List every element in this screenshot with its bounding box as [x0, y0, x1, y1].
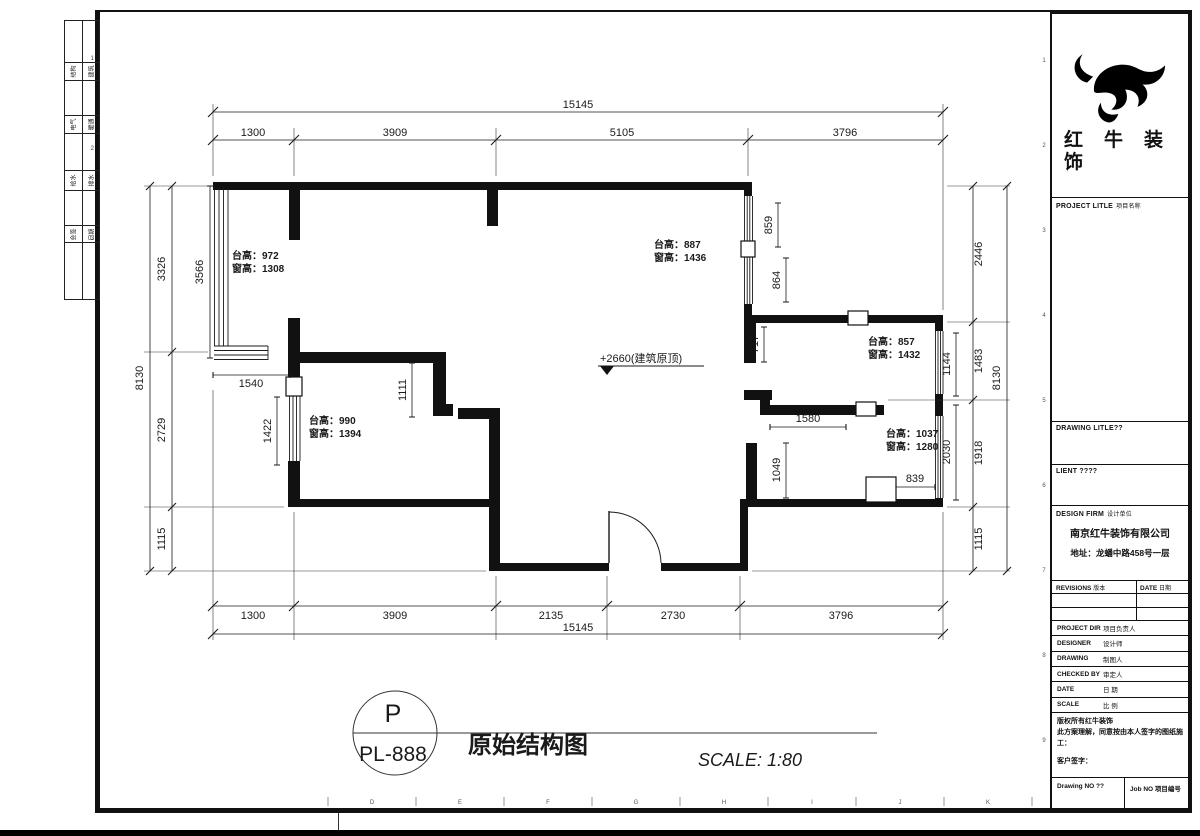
- dim-right-1: 1483: [973, 349, 985, 373]
- project-title-section: PROJECT LITLE项目名称: [1052, 197, 1188, 421]
- dim-left-1: 2729: [156, 418, 168, 442]
- strip-label: 排水: [86, 174, 95, 186]
- page-title: 原始结构图: [468, 731, 588, 759]
- dim-inner-859: 859: [763, 216, 775, 234]
- svg-text:2: 2: [1042, 143, 1046, 149]
- dim-right-3: 1115: [973, 528, 985, 551]
- elevation-marker: +2660(建筑原顶): [598, 351, 704, 375]
- dimension-lines: [150, 112, 1007, 634]
- numbers-section: Drawing NO ?? Job NO 项目编号: [1052, 777, 1188, 812]
- wall-columns: [286, 241, 896, 502]
- svg-text:7: 7: [1042, 568, 1046, 574]
- numbers-divider: [1124, 778, 1125, 812]
- svg-text:E: E: [458, 800, 462, 806]
- drawing-sheet: { "sheet": { "drawing_title": "原始结构图", "…: [0, 0, 1200, 836]
- brand-name-line2: 饰: [1052, 152, 1188, 174]
- client-sign-label: 客户签字：: [1057, 757, 1183, 768]
- dim-inner-2030: 2030: [941, 440, 953, 464]
- dim-inner-864: 864: [771, 271, 783, 289]
- project-title-label: PROJECT LITLE: [1056, 203, 1113, 210]
- design-firm-section: DESIGN FIRM设计单位 南京红牛装饰有限公司 地址：龙蟠中路458号一层: [1052, 505, 1188, 580]
- dim-bottom-3: 2730: [661, 610, 685, 622]
- revisions-label: REVISIONS: [1056, 585, 1091, 592]
- frame-right-border: [1190, 10, 1192, 813]
- staff-row: SCALE比 例: [1052, 697, 1188, 712]
- strip-label: 会签: [69, 228, 78, 240]
- svg-text:3: 3: [1042, 228, 1046, 234]
- note-sill: 台高：990: [309, 414, 356, 427]
- drawing-no-label: Drawing NO ??: [1057, 783, 1104, 790]
- staff-rows-section: PROJECT DIR项目负责人 DESIGNER设计师 DRAWING制图人 …: [1052, 620, 1188, 712]
- strip-blank-row: [65, 243, 99, 299]
- note-sill: 台高：1037: [886, 427, 939, 440]
- rednull-bull-logo-icon: [1068, 48, 1172, 126]
- staff-row: DESIGNER设计师: [1052, 635, 1188, 650]
- copyright-line1: 版权所有红牛装饰: [1057, 717, 1183, 728]
- note-win: 窗高：1432: [868, 348, 921, 361]
- strip-label-row: 结构 建筑: [65, 63, 99, 81]
- binding-strip: 结构 建筑 电气 暖通 给水 排水 会签 日期: [64, 20, 100, 300]
- sheet-row-ref: 3: [86, 236, 94, 242]
- dim-inner-1049: 1049: [771, 458, 783, 482]
- svg-text:K: K: [986, 800, 990, 806]
- date-col-label: DATE: [1140, 585, 1157, 592]
- dim-bottom-1: 3909: [383, 610, 407, 622]
- revisions-row-line: [1052, 607, 1188, 608]
- dim-right-0: 2446: [973, 242, 985, 266]
- svg-text:6: 6: [1042, 483, 1046, 489]
- staff-row: CHECKED BY审定人: [1052, 666, 1188, 681]
- stamp-code: P: [385, 700, 402, 728]
- dim-left-0: 3326: [156, 257, 168, 281]
- note-sill: 台高：857: [868, 335, 915, 348]
- dim-inner-1422: 1422: [262, 419, 274, 443]
- stamp-number: PL-888: [359, 743, 427, 766]
- dim-top-1: 3909: [383, 127, 407, 139]
- dim-bottom-4: 3796: [829, 610, 853, 622]
- dim-bottom-2: 2135: [539, 610, 563, 622]
- svg-text:4: 4: [1042, 313, 1046, 319]
- dim-inner-1580: 1580: [796, 413, 820, 425]
- dim-inner-1111: 1111: [397, 379, 409, 401]
- sheet-row-refs-right: 1 2 3 4 5 6 7 8 9: [1042, 58, 1046, 744]
- client-label: LIENT ????: [1056, 468, 1097, 475]
- svg-text:D: D: [370, 800, 375, 806]
- svg-text:I: I: [811, 800, 813, 806]
- note-win: 窗高：1280: [886, 440, 939, 453]
- window-lines: [214, 186, 943, 498]
- svg-text:9: 9: [1042, 738, 1046, 744]
- dim-top-0: 1300: [241, 127, 265, 139]
- dim-inner-839: 839: [906, 473, 924, 485]
- strip-label-row: 电气 暖通: [65, 116, 99, 134]
- svg-text:8: 8: [1042, 653, 1046, 659]
- design-firm-label: DESIGN FIRM: [1056, 511, 1104, 518]
- strip-blank-row: [65, 191, 99, 226]
- drawing-title-label: DRAWING LITLE??: [1056, 425, 1123, 432]
- design-firm-cn: 设计单位: [1107, 512, 1132, 518]
- strip-blank-row: [65, 81, 99, 116]
- strip-label: 电气: [69, 118, 78, 130]
- dim-right-total: 8130: [991, 366, 1003, 390]
- dim-right-2: 1918: [973, 441, 985, 465]
- dim-inner-717: 717: [749, 335, 761, 353]
- strip-label: 建筑: [86, 65, 95, 77]
- svg-text:5: 5: [1042, 398, 1046, 404]
- window-notes: 台高：972 窗高：1308 台高：887 窗高：1436 台高：857 窗高：…: [232, 238, 939, 453]
- firm-address: 地址：龙蟠中路458号一层: [1052, 547, 1188, 559]
- svg-text:G: G: [634, 800, 639, 806]
- strip-label: 结构: [69, 65, 78, 77]
- staff-row: DATE日 期: [1052, 681, 1188, 696]
- dim-inner-3566: 3566: [194, 260, 206, 284]
- drawing-title-section: DRAWING LITLE??: [1052, 421, 1188, 464]
- note-sill: 台高：887: [654, 238, 701, 251]
- project-title-cn: 项目名称: [1116, 204, 1141, 210]
- copyright-section: 版权所有红牛装饰 此方案理解，同意按由本人签字的图纸施工： 客户签字：: [1052, 712, 1188, 777]
- svg-text:H: H: [722, 800, 726, 806]
- sheet-row-ref: 2: [86, 146, 94, 152]
- sheet-edge-bar: [0, 830, 1200, 836]
- sheet-column-refs: D E F G H I J K: [328, 797, 1032, 806]
- dim-top-total: 15145: [563, 99, 594, 111]
- dimension-texts: 15145 1300 3909 5105 3796 1300 3909 2135…: [134, 99, 1003, 634]
- firm-name: 南京红牛装饰有限公司: [1052, 525, 1188, 540]
- strip-blank-row: [65, 134, 99, 171]
- sheet-row-ref: 1: [86, 56, 94, 62]
- revisions-cn: 版本: [1093, 586, 1105, 592]
- note-win: 窗高：1308: [232, 262, 285, 275]
- strip-label: 暖通: [86, 118, 95, 130]
- brand-name-line1: 红牛装: [1052, 130, 1188, 152]
- revisions-divider: [1136, 581, 1137, 620]
- sheet-edge-connector: [338, 813, 339, 830]
- note-win: 窗高：1394: [309, 427, 362, 440]
- copyright-line2: 此方案理解，同意按由本人签字的图纸施工：: [1057, 728, 1183, 750]
- door-swing: [609, 511, 661, 563]
- svg-text:F: F: [546, 800, 550, 806]
- floor-plan-canvas: 15145 1300 3909 5105 3796 1300 3909 2135…: [100, 11, 1050, 811]
- dim-top-2: 5105: [610, 127, 634, 139]
- client-section: LIENT ????: [1052, 464, 1188, 505]
- dim-bottom-0: 1300: [241, 610, 265, 622]
- strip-label-row: 给水 排水: [65, 171, 99, 191]
- date-col-cn: 日期: [1159, 586, 1171, 592]
- dim-top-3: 3796: [833, 127, 857, 139]
- elevation-text: +2660(建筑原顶): [600, 351, 682, 365]
- dim-inner-1144: 1144: [941, 352, 953, 376]
- svg-text:J: J: [899, 800, 902, 806]
- job-no-label: Job NO 项目编号: [1130, 783, 1181, 793]
- walls-layer: [213, 182, 943, 571]
- revisions-section: REVISIONS 版本 DATE 日期: [1052, 580, 1188, 620]
- svg-text:1: 1: [1042, 58, 1046, 64]
- note-sill: 台高：972: [232, 249, 279, 262]
- dim-left-total: 8130: [134, 366, 146, 390]
- scale-label: SCALE: 1:80: [698, 750, 802, 770]
- note-win: 窗高：1436: [654, 251, 707, 264]
- staff-row: PROJECT DIR项目负责人: [1052, 620, 1188, 635]
- brand-section: 红牛装 饰: [1052, 14, 1188, 197]
- elevation-triangle-icon: [600, 366, 614, 375]
- dim-inner-1540: 1540: [239, 378, 263, 390]
- strip-label: 给水: [69, 174, 78, 186]
- dim-bottom-total: 15145: [563, 622, 594, 634]
- staff-row: DRAWING制图人: [1052, 651, 1188, 666]
- title-block: 红牛装 饰 PROJECT LITLE项目名称 DRAWING LITLE?? …: [1050, 12, 1190, 810]
- dim-left-2: 1115: [156, 528, 168, 551]
